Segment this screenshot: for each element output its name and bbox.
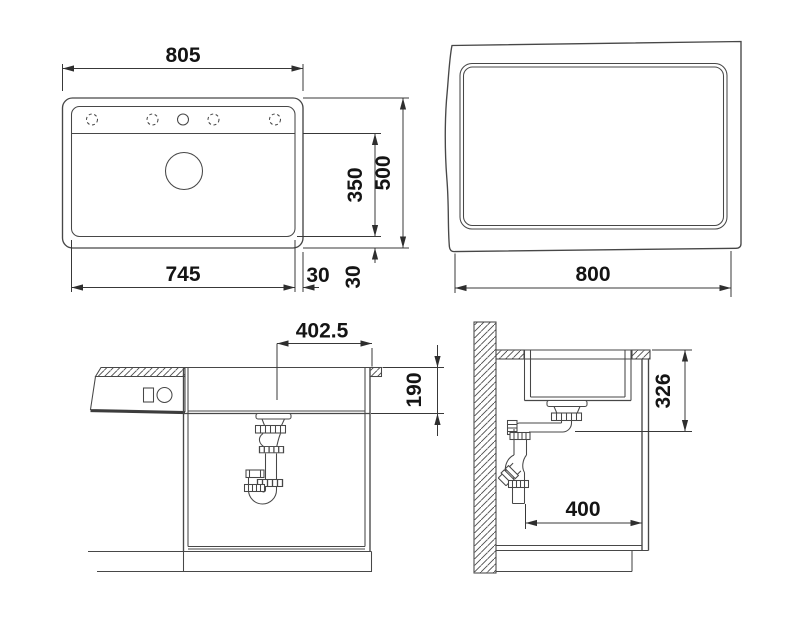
dim-label-805: 805 bbox=[165, 44, 200, 67]
siphon-front bbox=[245, 414, 292, 505]
worktop-side bbox=[496, 350, 650, 359]
dim-cutout-width: 800 bbox=[455, 251, 731, 297]
dim-label-190: 190 bbox=[403, 372, 426, 407]
dim-overall-width: 805 bbox=[63, 44, 304, 91]
worktop-slab-edge bbox=[445, 42, 741, 252]
stub-nut bbox=[245, 485, 265, 492]
strainer-cone bbox=[262, 419, 285, 426]
bowl-side bbox=[525, 351, 632, 401]
dim-bowl-depth: 350 bbox=[297, 134, 381, 237]
strainer-cone bbox=[554, 407, 580, 414]
elbow-joint bbox=[259, 434, 280, 448]
dim-label-30-bottom: 30 bbox=[342, 265, 365, 288]
dim-label-350: 350 bbox=[344, 167, 367, 202]
front-section-view: 402.5 190 bbox=[88, 320, 444, 572]
worktop-section-left bbox=[96, 368, 186, 377]
sink-outer-edge bbox=[63, 98, 304, 248]
dim-label-500: 500 bbox=[372, 155, 395, 190]
control-knob-icon bbox=[157, 388, 172, 403]
tap-hole-icon bbox=[178, 114, 189, 125]
strainer-nut bbox=[552, 413, 582, 421]
tap-hole-icon bbox=[270, 114, 281, 125]
cutout-view: 800 bbox=[445, 42, 741, 298]
dim-drain-offset: 402.5 bbox=[277, 320, 372, 401]
dim-rim-bottom: 30 bbox=[342, 248, 375, 289]
u-trap-bend bbox=[249, 490, 277, 504]
cabinet-front bbox=[88, 547, 372, 572]
union-nut bbox=[260, 447, 284, 453]
cutout-inner-line bbox=[464, 67, 724, 226]
dim-bowl-height: 190 bbox=[371, 345, 444, 436]
drain-hole-icon bbox=[166, 153, 203, 190]
dim-label-745: 745 bbox=[165, 263, 200, 286]
dim-label-326: 326 bbox=[652, 373, 675, 408]
drawing-sheet: 805 745 30 350 500 30 bbox=[0, 0, 794, 619]
control-button-icon bbox=[144, 388, 154, 402]
cabinet-side bbox=[496, 359, 649, 572]
wall-section bbox=[474, 322, 496, 573]
tap-hole-icon bbox=[208, 114, 219, 125]
strainer-flange bbox=[256, 414, 291, 420]
dim-label-30-right: 30 bbox=[306, 264, 329, 287]
sink-inner-edge bbox=[72, 107, 296, 237]
side-section-view: 326 400 bbox=[474, 322, 692, 573]
strainer-nut bbox=[256, 426, 286, 434]
worktop-section-right bbox=[370, 368, 382, 377]
dim-outlet-height: 326 bbox=[575, 350, 692, 432]
cutout-outer-line bbox=[460, 64, 727, 230]
dim-label-800: 800 bbox=[575, 263, 610, 286]
trap-cap bbox=[246, 470, 264, 478]
tap-holes bbox=[87, 114, 281, 125]
pipe-nut bbox=[510, 433, 530, 440]
plan-view: 805 745 30 350 500 30 bbox=[63, 44, 410, 292]
tap-hole-icon bbox=[87, 114, 98, 125]
strainer-flange bbox=[547, 401, 587, 407]
tap-hole-icon bbox=[147, 114, 158, 125]
siphon-side bbox=[497, 401, 587, 504]
dim-label-402-5: 402.5 bbox=[296, 320, 349, 343]
stub-nut bbox=[509, 481, 529, 488]
dim-wall-to-front: 400 bbox=[526, 498, 643, 529]
front-apron-panel bbox=[91, 377, 186, 413]
dim-label-400: 400 bbox=[565, 498, 600, 521]
dim-rim-right: 30 bbox=[303, 252, 330, 292]
technical-drawing: 805 745 30 350 500 30 bbox=[0, 0, 794, 619]
